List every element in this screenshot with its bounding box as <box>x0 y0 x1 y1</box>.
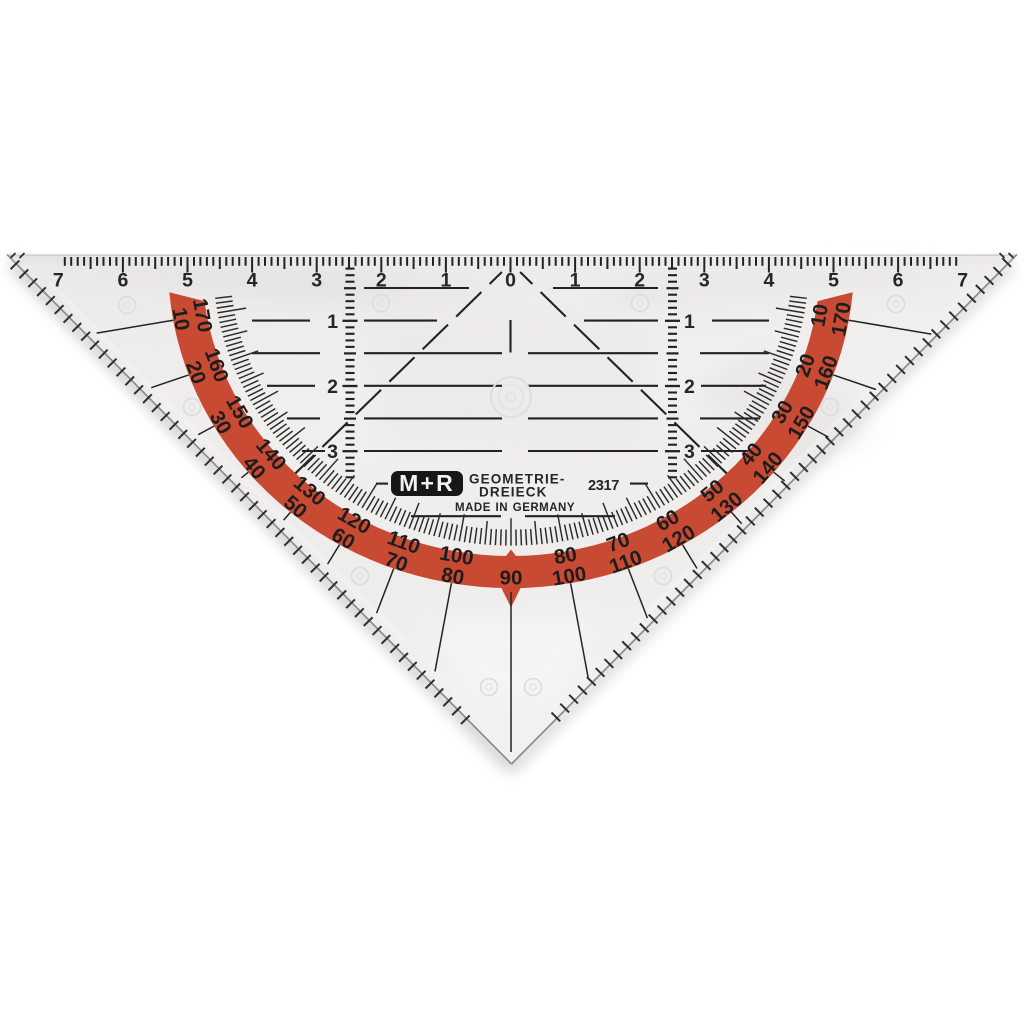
svg-text:6: 6 <box>893 270 904 292</box>
svg-text:2317: 2317 <box>588 478 619 494</box>
svg-text:DREIECK: DREIECK <box>479 485 547 500</box>
svg-text:0: 0 <box>505 270 516 292</box>
svg-text:7: 7 <box>957 270 968 292</box>
svg-text:90: 90 <box>500 567 523 590</box>
svg-text:2: 2 <box>327 376 338 398</box>
svg-text:M+R: M+R <box>399 470 455 496</box>
svg-text:10: 10 <box>167 306 194 332</box>
svg-text:7: 7 <box>53 270 64 292</box>
svg-text:80: 80 <box>439 563 465 590</box>
svg-text:4: 4 <box>763 270 774 292</box>
svg-text:1: 1 <box>684 311 695 333</box>
svg-text:3: 3 <box>699 270 710 292</box>
svg-text:1: 1 <box>327 311 338 333</box>
svg-text:MADE IN GERMANY: MADE IN GERMANY <box>455 502 575 514</box>
svg-text:2: 2 <box>684 376 695 398</box>
svg-text:6: 6 <box>117 270 128 292</box>
svg-text:5: 5 <box>828 270 839 292</box>
svg-text:4: 4 <box>247 270 258 292</box>
svg-text:5: 5 <box>182 270 193 292</box>
svg-text:3: 3 <box>311 270 322 292</box>
